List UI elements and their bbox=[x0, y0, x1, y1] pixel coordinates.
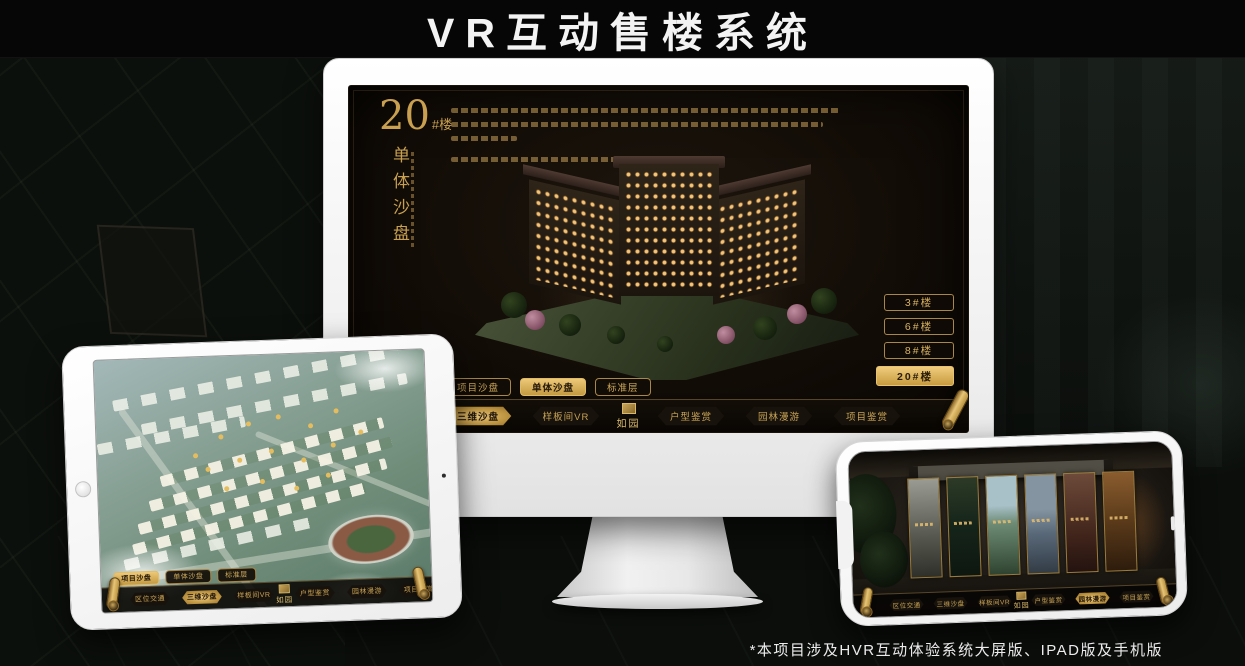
brand-logo-text: 如园 bbox=[1014, 600, 1030, 611]
nav-left-group: 区位交通三维沙盘样板间VR bbox=[128, 587, 276, 607]
nav-left-group: 区位交通三维沙盘样板间VR bbox=[887, 594, 1013, 611]
nav-right-group: 户型鉴赏园林漫游项目鉴赏 bbox=[293, 581, 434, 601]
nav-item[interactable]: 三维沙盘 bbox=[931, 596, 969, 610]
tablet-home-button-icon[interactable] bbox=[75, 481, 92, 498]
scene-panel[interactable] bbox=[907, 477, 942, 578]
cloud bbox=[329, 348, 433, 396]
scene-gallery bbox=[907, 471, 1137, 579]
tree bbox=[559, 314, 581, 336]
phone-screen: 区位交通三维沙盘样板间VR 如园 户型鉴赏园林漫游项目鉴赏 bbox=[847, 440, 1178, 618]
nav-item[interactable]: 园林漫游 bbox=[345, 583, 389, 600]
page-canvas: VR互动售楼系统 20#楼 单体沙盘 bbox=[0, 0, 1245, 666]
floor-button[interactable]: 3#楼 bbox=[884, 294, 954, 311]
phone-side-button bbox=[1171, 516, 1175, 530]
building-3d-render[interactable] bbox=[467, 164, 867, 384]
nav-item[interactable]: 三维沙盘 bbox=[180, 589, 224, 606]
description-line bbox=[451, 108, 839, 113]
brand-logo: 如园 bbox=[276, 583, 294, 605]
description-line bbox=[451, 122, 823, 127]
view-tab[interactable]: 标准层 bbox=[217, 567, 256, 582]
stadium bbox=[325, 509, 417, 569]
building-heading: 20#楼 bbox=[379, 94, 452, 138]
view-tab[interactable]: 标准层 bbox=[595, 378, 651, 396]
scroll-menu-icon[interactable] bbox=[940, 387, 969, 430]
building-subtitle-vertical: 单体沙盘 bbox=[387, 146, 412, 250]
tree bbox=[811, 288, 837, 314]
nav-item[interactable]: 样板间VR bbox=[529, 406, 603, 427]
tablet-camera-dot-icon bbox=[442, 474, 446, 478]
brand-seal-icon bbox=[622, 403, 636, 414]
nav-item[interactable]: 户型鉴赏 bbox=[654, 406, 728, 427]
tree bbox=[607, 326, 625, 344]
blossom-tree bbox=[525, 310, 545, 330]
monitor-stand bbox=[557, 513, 758, 597]
blossom-tree bbox=[717, 326, 735, 344]
nav-right-group: 户型鉴赏园林漫游项目鉴赏 bbox=[654, 406, 904, 427]
building-number-suffix: #楼 bbox=[432, 117, 452, 132]
phone-notch bbox=[836, 500, 854, 569]
nav-item[interactable]: 区位交通 bbox=[887, 598, 925, 612]
floor-button[interactable]: 20#楼 bbox=[876, 366, 954, 386]
tablet-screen: 项目沙盘单体沙盘标准层 区位交通三维沙盘样板间VR 如园 户型鉴赏园林漫游项目鉴… bbox=[93, 348, 434, 613]
brand-logo-text: 如园 bbox=[276, 593, 293, 605]
tree bbox=[657, 336, 673, 352]
brand-seal-icon bbox=[1016, 591, 1026, 599]
nav-item[interactable]: 户型鉴赏 bbox=[293, 585, 337, 602]
brand-logo: 如园 bbox=[1013, 591, 1030, 611]
nav-item[interactable]: 项目鉴赏 bbox=[1117, 590, 1155, 604]
tree bbox=[501, 292, 527, 318]
subtitle-caption-line bbox=[411, 152, 414, 248]
scene-panel[interactable] bbox=[1063, 472, 1098, 573]
view-tab[interactable]: 单体沙盘 bbox=[165, 569, 211, 585]
brand-logo-text: 如园 bbox=[617, 415, 641, 430]
building-number: 20 bbox=[379, 93, 430, 139]
floor-button-column: 3#楼 6#楼 8#楼 20#楼 bbox=[876, 294, 954, 386]
scene-panel[interactable] bbox=[985, 475, 1020, 576]
page-title: VR互动售楼系统 bbox=[427, 0, 818, 59]
nav-right-group: 户型鉴赏园林漫游项目鉴赏 bbox=[1029, 590, 1155, 607]
floor-button[interactable]: 6#楼 bbox=[884, 318, 954, 335]
brand-logo: 如园 bbox=[617, 403, 641, 430]
tablet-frame: 项目沙盘单体沙盘标准层 区位交通三维沙盘样板间VR 如园 户型鉴赏园林漫游项目鉴… bbox=[61, 333, 463, 631]
nav-item[interactable]: 项目鉴赏 bbox=[830, 406, 904, 427]
nav-item[interactable]: 样板间VR bbox=[232, 587, 276, 604]
brand-seal-icon bbox=[279, 584, 290, 593]
title-strip: VR互动售楼系统 bbox=[0, 0, 1245, 58]
building-wing-left bbox=[529, 179, 621, 304]
tree bbox=[753, 316, 777, 340]
scene-panel[interactable] bbox=[946, 476, 981, 577]
building-number-badges[interactable] bbox=[193, 453, 198, 458]
footnote-text: *本项目涉及HVR互动体验系统大屏版、IPAD版及手机版 bbox=[750, 639, 1163, 660]
phone-frame: 区位交通三维沙盘样板间VR 如园 户型鉴赏园林漫游项目鉴赏 bbox=[835, 430, 1188, 627]
floor-button[interactable]: 8#楼 bbox=[884, 342, 954, 359]
building-wing-right bbox=[713, 179, 805, 304]
scene-panel[interactable] bbox=[1102, 471, 1137, 572]
nav-item[interactable]: 户型鉴赏 bbox=[1029, 593, 1067, 607]
view-tab[interactable]: 单体沙盘 bbox=[520, 378, 586, 396]
monitor-view-tabs: 项目沙盘 单体沙盘 标准层 bbox=[445, 378, 651, 396]
scene-panel[interactable] bbox=[1024, 473, 1059, 574]
nav-item[interactable]: 园林漫游 bbox=[742, 406, 816, 427]
nav-item[interactable]: 园林漫游 bbox=[1073, 591, 1111, 605]
blossom-tree bbox=[787, 304, 807, 324]
background-plaque bbox=[97, 225, 208, 338]
monitor-base bbox=[552, 594, 763, 609]
nav-item[interactable]: 样板间VR bbox=[975, 594, 1013, 608]
building-core bbox=[619, 164, 719, 296]
description-line bbox=[451, 157, 619, 162]
nav-item[interactable]: 区位交通 bbox=[128, 591, 172, 608]
description-line bbox=[451, 136, 517, 141]
